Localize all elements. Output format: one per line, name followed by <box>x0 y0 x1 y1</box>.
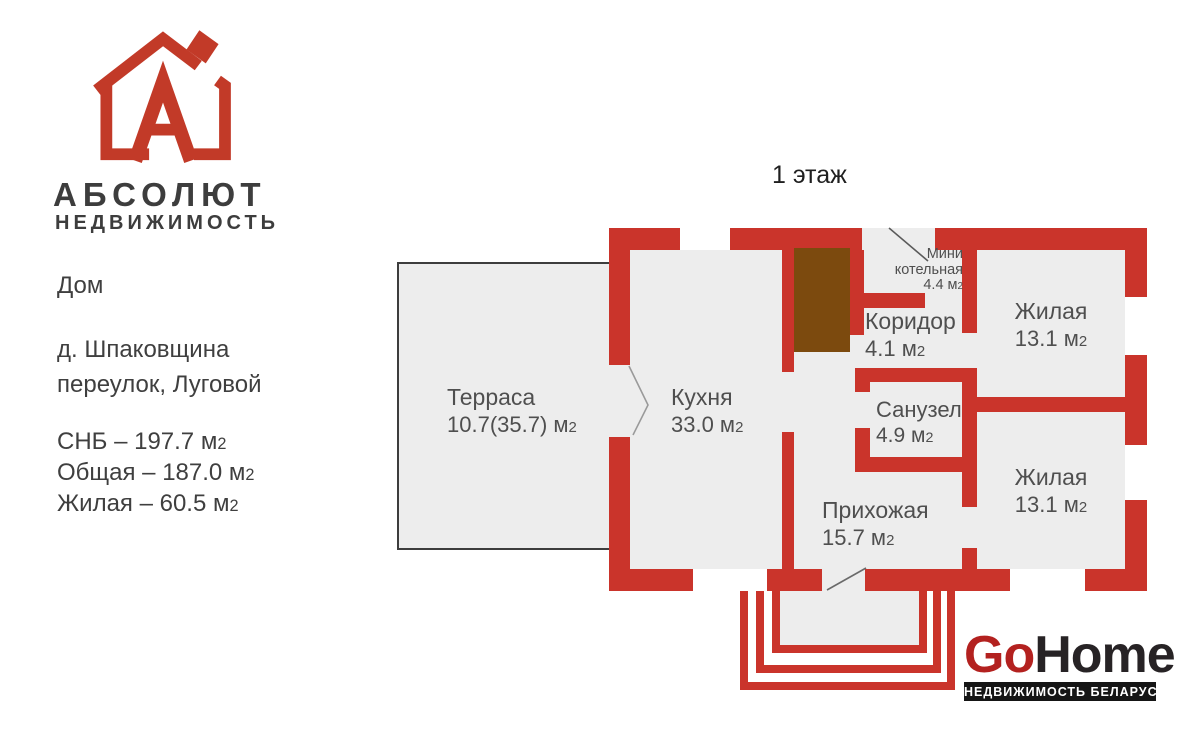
brand-title: АБСОЛЮТ <box>53 176 267 214</box>
address-line-2: переулок, Луговой <box>57 371 262 399</box>
gohome-tagline: НЕДВИЖИМОСТЬ БЕЛАРУСИ <box>964 682 1156 701</box>
floor-title: 1 этаж <box>772 161 847 190</box>
room-label-corridor: Коридор 4.1 м2 <box>865 307 956 366</box>
wall-segment <box>1085 569 1147 591</box>
brand-subtitle: НЕДВИЖИМОСТЬ <box>55 212 279 235</box>
wall-segment <box>855 368 977 382</box>
wall-segment <box>855 293 925 308</box>
window-opening <box>1010 569 1085 591</box>
wall-segment <box>1125 355 1147 445</box>
wall-segment <box>935 228 1147 250</box>
wall-segment <box>730 228 862 250</box>
wall-segment <box>855 457 977 472</box>
stat-living: Жилая – 60.5 м2 <box>57 490 239 518</box>
wall-segment <box>855 382 870 392</box>
wall-segment <box>962 250 977 333</box>
stat-snb: СНБ – 197.7 м2 <box>57 428 226 456</box>
wall-segment <box>767 569 822 591</box>
gohome-logo: GoHome НЕДВИЖИМОСТЬ БЕЛАРУСИ <box>964 628 1156 701</box>
wall-segment <box>962 397 1125 412</box>
room-label-living-1: Жилая 13.1 м2 <box>977 297 1125 356</box>
window-opening <box>693 569 767 591</box>
stat-total: Общая – 187.0 м2 <box>57 459 255 487</box>
wall-segment <box>962 368 977 507</box>
room-label-bathroom: Санузел 4.9 м2 <box>876 397 962 451</box>
wall-segment <box>782 250 794 372</box>
room-label-boiler: Мини котельная 4.4 м2 <box>860 247 963 295</box>
wall-segment <box>865 569 1010 591</box>
window-opening <box>1125 297 1147 355</box>
gohome-logo-home: Home <box>1034 626 1174 684</box>
window-opening <box>1125 445 1147 500</box>
listing-type: Дом <box>57 272 103 300</box>
wall-segment <box>782 432 794 569</box>
window-opening <box>680 228 730 250</box>
address-line-1: д. Шпаковщина <box>57 336 229 364</box>
wall-segment <box>609 569 693 591</box>
wall-segment <box>609 437 630 591</box>
wall-segment <box>962 548 977 569</box>
porch-step-inner <box>772 591 927 653</box>
room-label-hallway: Прихожая 15.7 м2 <box>822 496 929 555</box>
room-label-kitchen: Кухня 33.0 м2 <box>671 383 743 442</box>
wall-segment <box>1125 228 1147 297</box>
room-label-living-2: Жилая 13.1 м2 <box>977 463 1125 522</box>
gohome-logo-go: Go <box>964 626 1034 684</box>
floor-plan-page: АБСОЛЮТ НЕДВИЖИМОСТЬ Дом д. Шпаковщина п… <box>0 0 1200 729</box>
room-label-terrace: Терраса 10.7(35.7) м2 <box>447 383 577 442</box>
wall-segment <box>609 228 630 365</box>
boiler-unit <box>794 248 850 352</box>
absolut-house-logo-icon <box>88 26 238 166</box>
